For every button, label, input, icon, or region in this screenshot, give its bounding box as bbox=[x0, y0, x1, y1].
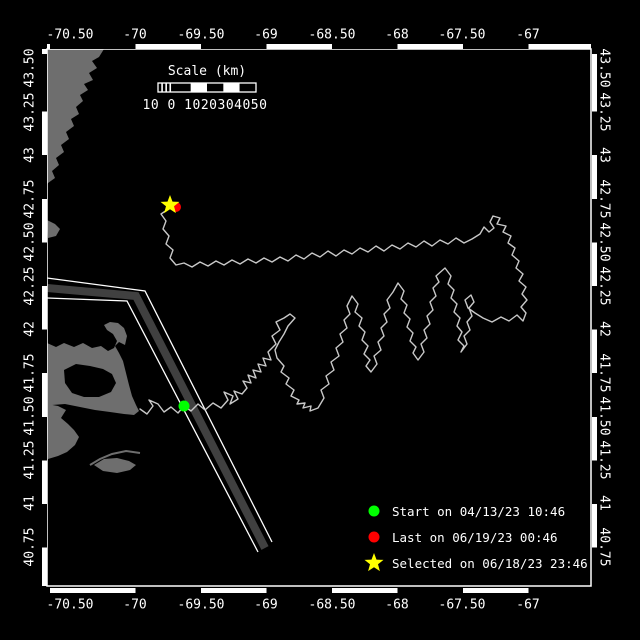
lon-tick-top: -70 bbox=[123, 28, 146, 43]
scale-bar bbox=[158, 83, 256, 92]
lon-tick-bottom: -70.50 bbox=[47, 598, 94, 613]
lat-tick-left: 40.75 bbox=[23, 527, 38, 566]
lat-tick-left: 41.75 bbox=[23, 353, 38, 392]
scalebar-labels: 10 0 1020304050 bbox=[143, 98, 268, 113]
legend: Start on 04/13/23 10:46 Last on 06/19/23… bbox=[360, 498, 588, 576]
lat-tick-left: 42.75 bbox=[23, 179, 38, 218]
vehicle-track[interactable] bbox=[140, 206, 527, 414]
lat-tick-left: 43.50 bbox=[23, 48, 38, 87]
scalebar-title: Scale (km) bbox=[168, 64, 246, 79]
lon-tick-bottom: -69.50 bbox=[178, 598, 225, 613]
lat-tick-right: 43.50 bbox=[597, 48, 612, 87]
lat-tick-left: 41.25 bbox=[23, 440, 38, 479]
lat-tick-right: 42.25 bbox=[597, 266, 612, 305]
lat-tick-right: 41.50 bbox=[597, 396, 612, 435]
lon-tick-top: -67 bbox=[516, 28, 539, 43]
lon-tick-top: -70.50 bbox=[47, 28, 94, 43]
lon-tick-top: -69.50 bbox=[178, 28, 225, 43]
start-dot-icon bbox=[360, 499, 388, 523]
last-dot-icon bbox=[360, 525, 388, 549]
lat-tick-right: 40.75 bbox=[597, 527, 612, 566]
south-strip-marthas-vineyard bbox=[47, 404, 79, 459]
lat-tick-left: 42.50 bbox=[23, 222, 38, 261]
legend-item-start: Start on 04/13/23 10:46 bbox=[360, 498, 588, 524]
legend-item-last: Last on 06/19/23 00:46 bbox=[360, 524, 588, 550]
coast-blob bbox=[47, 220, 60, 238]
lon-tick-top: -67.50 bbox=[439, 28, 486, 43]
lat-tick-left: 41 bbox=[23, 495, 38, 511]
lon-tick-bottom: -68.50 bbox=[309, 598, 356, 613]
legend-last-label: Last on 06/19/23 00:46 bbox=[392, 530, 558, 545]
shipping-lane bbox=[47, 278, 272, 552]
map-border-bottom bbox=[47, 588, 591, 593]
lat-tick-right: 43.25 bbox=[597, 92, 612, 131]
lat-tick-right: 42 bbox=[597, 321, 612, 337]
lat-tick-left: 42.25 bbox=[23, 266, 38, 305]
lon-tick-bottom: -70 bbox=[123, 598, 146, 613]
legend-selected-label: Selected on 06/18/23 23:46 bbox=[392, 556, 588, 571]
lon-tick-bottom: -69 bbox=[254, 598, 277, 613]
lat-tick-left: 41.50 bbox=[23, 396, 38, 435]
lat-tick-right: 41.25 bbox=[597, 440, 612, 479]
legend-start-label: Start on 04/13/23 10:46 bbox=[392, 504, 565, 519]
lon-tick-bottom: -67 bbox=[516, 598, 539, 613]
nantucket bbox=[94, 458, 136, 473]
lat-tick-left: 42 bbox=[23, 321, 38, 337]
legend-item-selected: Selected on 06/18/23 23:46 bbox=[360, 550, 588, 576]
map-figure: Scale (km) 10 0 1020304050 Start on 04/1… bbox=[0, 0, 640, 640]
lon-tick-top: -68.50 bbox=[309, 28, 356, 43]
lat-tick-right: 41.75 bbox=[597, 353, 612, 392]
lat-tick-right: 42.75 bbox=[597, 179, 612, 218]
lon-tick-top: -68 bbox=[385, 28, 408, 43]
map-border-left bbox=[42, 49, 47, 586]
north-shore bbox=[47, 49, 104, 185]
lat-tick-right: 42.50 bbox=[597, 222, 612, 261]
start-marker bbox=[179, 401, 190, 412]
land-layer bbox=[47, 49, 140, 473]
lat-tick-left: 43.25 bbox=[23, 92, 38, 131]
lat-tick-left: 43 bbox=[23, 147, 38, 163]
lat-tick-right: 41 bbox=[597, 495, 612, 511]
lon-tick-bottom: -67.50 bbox=[439, 598, 486, 613]
lon-tick-bottom: -68 bbox=[385, 598, 408, 613]
selected-star-icon bbox=[360, 551, 388, 575]
lat-tick-right: 43 bbox=[597, 147, 612, 163]
map-border-top bbox=[47, 44, 591, 49]
lon-tick-top: -69 bbox=[254, 28, 277, 43]
